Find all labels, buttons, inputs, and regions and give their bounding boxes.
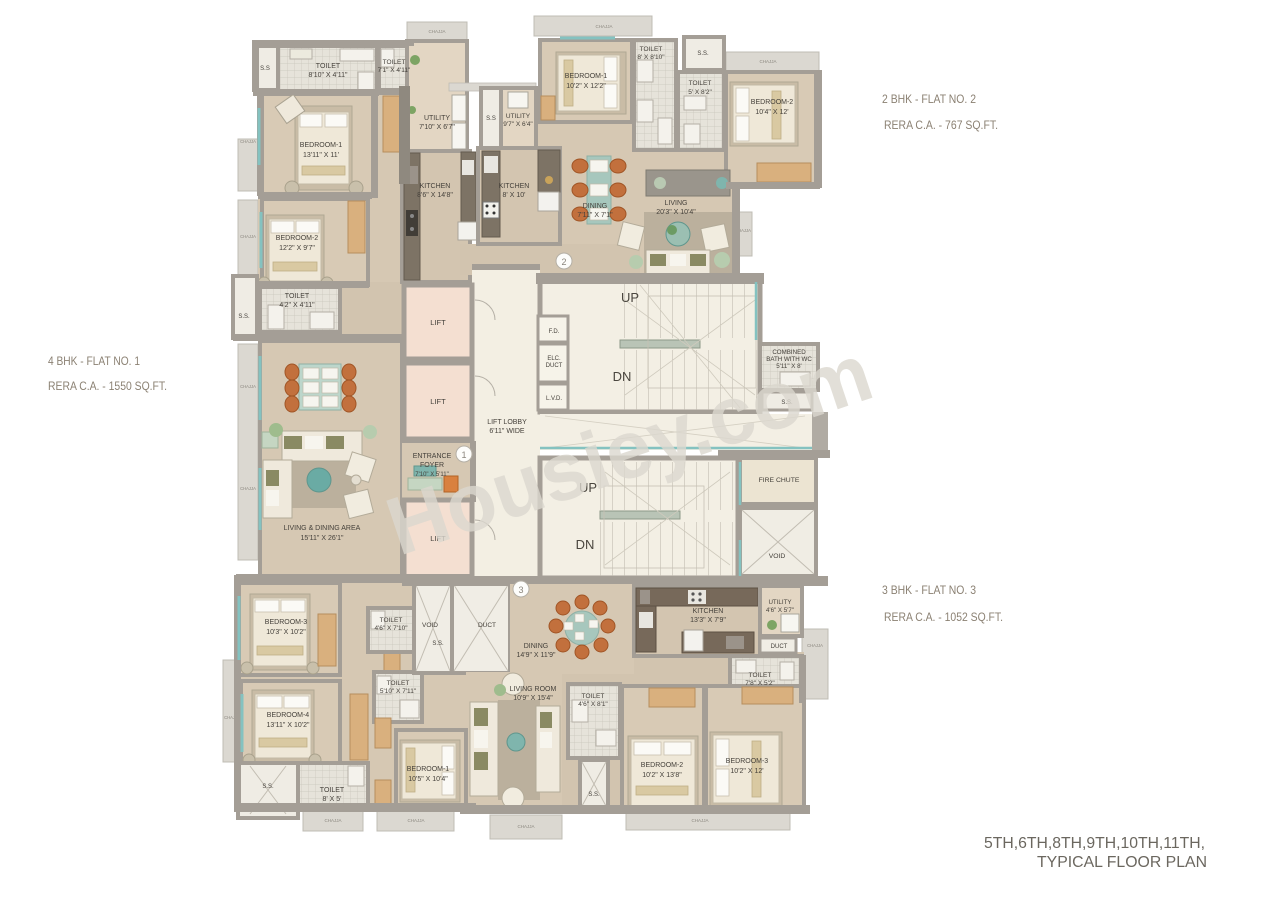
svg-text:UTILITY: UTILITY xyxy=(424,115,450,122)
svg-text:KITCHEN: KITCHEN xyxy=(693,608,724,615)
svg-text:KITCHEN: KITCHEN xyxy=(420,183,451,190)
svg-text:9'7" X 6'4": 9'7" X 6'4" xyxy=(503,121,533,128)
svg-text:VOID: VOID xyxy=(422,622,438,629)
svg-text:UTILITY: UTILITY xyxy=(768,599,791,606)
svg-text:4'6" X 7'10": 4'6" X 7'10" xyxy=(374,625,408,632)
svg-text:BEDROOM-3: BEDROOM-3 xyxy=(265,619,308,626)
svg-text:LIVING ROOM: LIVING ROOM xyxy=(510,686,557,693)
svg-text:DN: DN xyxy=(613,369,632,384)
svg-text:12'2" X 9'7": 12'2" X 9'7" xyxy=(279,245,315,252)
svg-text:DN: DN xyxy=(576,537,595,552)
svg-text:7'11" X 7'1": 7'11" X 7'1" xyxy=(577,212,613,219)
svg-text:TOILET: TOILET xyxy=(380,617,403,624)
svg-text:10'2" X 12'2": 10'2" X 12'2" xyxy=(566,83,606,90)
svg-text:RERA C.A. - 767 SQ.FT.: RERA C.A. - 767 SQ.FT. xyxy=(884,118,998,132)
svg-text:TOILET: TOILET xyxy=(285,293,310,300)
svg-text:10'2" X 13'8": 10'2" X 13'8" xyxy=(642,772,682,779)
svg-text:DINING: DINING xyxy=(524,643,549,650)
svg-text:8' X 8'10": 8' X 8'10" xyxy=(637,54,665,61)
svg-text:S.S.: S.S. xyxy=(588,792,600,798)
svg-text:CHAJJA: CHAJJA xyxy=(324,818,341,823)
svg-text:CHAJJA: CHAJJA xyxy=(517,824,534,829)
svg-text:CHAJJA: CHAJJA xyxy=(428,29,445,34)
svg-text:S.S.: S.S. xyxy=(238,314,250,320)
svg-text:CHAJJA: CHAJJA xyxy=(240,384,256,389)
svg-text:4'2" X 4'11": 4'2" X 4'11" xyxy=(279,302,315,309)
svg-text:CHAJJA: CHAJJA xyxy=(240,139,256,144)
svg-text:10'4" X 12': 10'4" X 12' xyxy=(755,109,788,116)
svg-text:BEDROOM-1: BEDROOM-1 xyxy=(300,142,343,149)
svg-text:CHAJJA: CHAJJA xyxy=(691,818,708,823)
svg-text:BEDROOM-4: BEDROOM-4 xyxy=(267,712,310,719)
svg-text:CHAJJA: CHAJJA xyxy=(807,643,823,648)
svg-text:LIFT LOBBY: LIFT LOBBY xyxy=(487,419,527,426)
svg-text:2 BHK - FLAT NO. 2: 2 BHK - FLAT NO. 2 xyxy=(882,92,976,106)
svg-text:BEDROOM-2: BEDROOM-2 xyxy=(276,235,319,242)
svg-text:S.S: S.S xyxy=(260,66,270,72)
svg-text:2: 2 xyxy=(561,257,566,267)
svg-text:3: 3 xyxy=(518,585,523,595)
svg-text:10'2" X 12': 10'2" X 12' xyxy=(730,768,763,775)
svg-text:10'3" X 10'2": 10'3" X 10'2" xyxy=(266,629,306,636)
svg-text:4'6" X 8'1": 4'6" X 8'1" xyxy=(578,701,608,708)
svg-text:TYPICAL FLOOR PLAN: TYPICAL FLOOR PLAN xyxy=(1037,854,1207,871)
svg-text:BEDROOM-1: BEDROOM-1 xyxy=(565,73,608,80)
svg-text:CHAJJA: CHAJJA xyxy=(240,234,256,239)
svg-text:5'10" X 7'11": 5'10" X 7'11" xyxy=(380,688,417,695)
svg-text:DINING: DINING xyxy=(583,203,608,210)
svg-text:S.S.: S.S. xyxy=(697,51,709,57)
svg-text:CHAJJA: CHAJJA xyxy=(759,59,776,64)
svg-text:10'5" X 10'4": 10'5" X 10'4" xyxy=(408,776,448,783)
svg-text:S.S.: S.S. xyxy=(262,784,274,790)
svg-text:4 BHK - FLAT NO. 1: 4 BHK - FLAT NO. 1 xyxy=(48,354,140,368)
svg-text:7'8" X 5'2": 7'8" X 5'2" xyxy=(745,680,775,687)
svg-text:7'1" X 4'11": 7'1" X 4'11" xyxy=(378,67,411,74)
svg-text:13'3" X 7'9": 13'3" X 7'9" xyxy=(690,617,726,624)
svg-text:13'11" X 10'2": 13'11" X 10'2" xyxy=(267,722,310,729)
svg-text:LIFT: LIFT xyxy=(430,397,446,406)
svg-text:10'9" X 15'4": 10'9" X 15'4" xyxy=(513,695,553,702)
svg-text:13'11" X 11': 13'11" X 11' xyxy=(303,152,339,159)
svg-text:L.V.D.: L.V.D. xyxy=(546,396,562,402)
svg-text:TOILET: TOILET xyxy=(320,787,345,794)
svg-text:S.S.: S.S. xyxy=(432,641,444,647)
svg-text:FIRE CHUTE: FIRE CHUTE xyxy=(759,477,800,484)
svg-text:4'6" X 5'7": 4'6" X 5'7" xyxy=(766,607,794,614)
svg-text:1: 1 xyxy=(461,450,466,460)
svg-text:VOID: VOID xyxy=(769,553,786,560)
svg-text:6'11" WIDE: 6'11" WIDE xyxy=(489,428,525,435)
svg-text:TOILET: TOILET xyxy=(387,680,410,687)
svg-text:TOILET: TOILET xyxy=(383,59,406,66)
svg-text:S.S: S.S xyxy=(486,116,496,122)
svg-text:5TH,6TH,8TH,9TH,10TH,11TH,: 5TH,6TH,8TH,9TH,10TH,11TH, xyxy=(984,835,1205,852)
svg-text:F.D.: F.D. xyxy=(549,329,560,335)
svg-text:BEDROOM-1: BEDROOM-1 xyxy=(407,766,450,773)
svg-text:TOILET: TOILET xyxy=(749,672,772,679)
svg-text:DUCT: DUCT xyxy=(478,622,496,629)
svg-text:20'3" X 10'4": 20'3" X 10'4" xyxy=(656,209,696,216)
svg-text:UTILITY: UTILITY xyxy=(506,113,531,120)
svg-text:RERA C.A. - 1052 SQ.FT.: RERA C.A. - 1052 SQ.FT. xyxy=(884,610,1003,624)
svg-text:LIFT: LIFT xyxy=(430,318,446,327)
svg-text:3 BHK - FLAT NO. 3: 3 BHK - FLAT NO. 3 xyxy=(882,583,976,597)
svg-text:KITCHEN: KITCHEN xyxy=(499,183,530,190)
svg-text:BEDROOM-2: BEDROOM-2 xyxy=(751,99,794,106)
svg-text:TOILET: TOILET xyxy=(316,63,341,70)
svg-text:7'10" X 6'7": 7'10" X 6'7" xyxy=(419,124,455,131)
svg-text:UP: UP xyxy=(621,290,639,305)
svg-text:8' X 10': 8' X 10' xyxy=(503,192,526,199)
svg-text:DUCT: DUCT xyxy=(771,644,788,650)
svg-text:ENTRANCE: ENTRANCE xyxy=(413,453,452,460)
svg-text:CHAJJA: CHAJJA xyxy=(595,24,612,29)
svg-text:8' X 5': 8' X 5' xyxy=(322,796,341,803)
svg-text:DUCT: DUCT xyxy=(546,363,563,369)
svg-text:ELC.: ELC. xyxy=(547,356,561,362)
svg-text:5' X 8'2": 5' X 8'2" xyxy=(688,89,712,96)
svg-text:8'6" X 14'8": 8'6" X 14'8" xyxy=(417,192,453,199)
svg-text:TOILET: TOILET xyxy=(640,46,663,53)
svg-text:TOILET: TOILET xyxy=(689,80,712,87)
svg-text:14'9" X 11'9": 14'9" X 11'9" xyxy=(516,652,556,659)
svg-text:BEDROOM-2: BEDROOM-2 xyxy=(641,762,684,769)
svg-text:CHAJJA: CHAJJA xyxy=(407,818,424,823)
svg-text:LIVING & DINING AREA: LIVING & DINING AREA xyxy=(284,525,361,532)
svg-text:8'10" X 4'11": 8'10" X 4'11" xyxy=(308,72,348,79)
svg-text:LIVING: LIVING xyxy=(665,200,688,207)
svg-text:RERA C.A. - 1550 SQ.FT.: RERA C.A. - 1550 SQ.FT. xyxy=(48,379,167,393)
svg-text:BEDROOM-3: BEDROOM-3 xyxy=(726,758,769,765)
svg-text:TOILET: TOILET xyxy=(582,693,605,700)
svg-text:15'11" X 26'1": 15'11" X 26'1" xyxy=(301,535,344,542)
svg-text:CHAJJA: CHAJJA xyxy=(240,486,256,491)
